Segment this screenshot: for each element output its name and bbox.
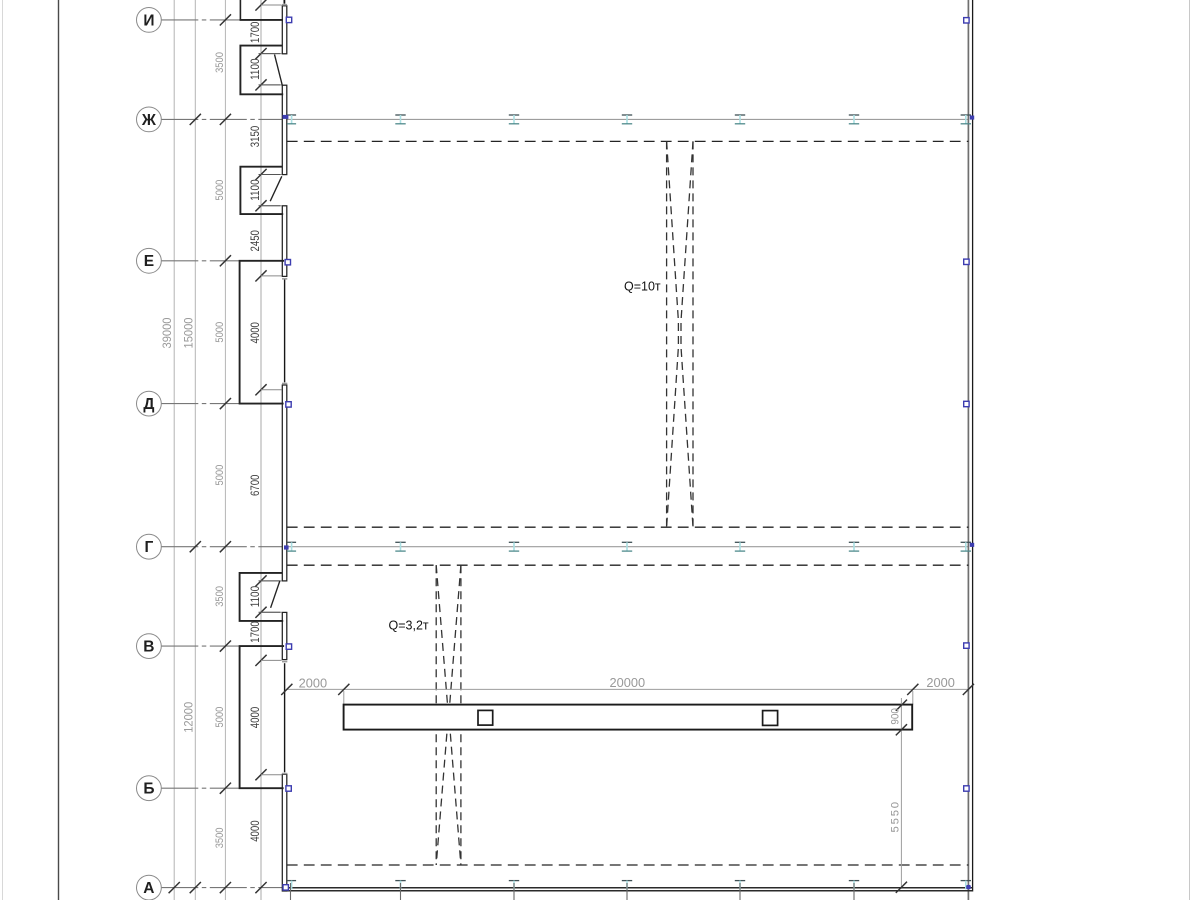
svg-text:5000: 5000	[214, 180, 226, 201]
svg-text:3500: 3500	[214, 52, 226, 73]
svg-text:1700: 1700	[248, 621, 262, 643]
svg-text:Q=10т: Q=10т	[624, 279, 661, 293]
svg-text:2450: 2450	[248, 230, 262, 252]
svg-text:4000: 4000	[248, 706, 262, 728]
svg-text:20000: 20000	[610, 675, 646, 690]
svg-text:5550: 5550	[890, 800, 902, 832]
svg-text:6700: 6700	[248, 474, 262, 496]
svg-text:Г: Г	[145, 539, 154, 556]
svg-text:1700: 1700	[248, 21, 262, 43]
svg-text:И: И	[143, 12, 154, 29]
svg-text:5000: 5000	[214, 322, 226, 343]
svg-text:12000: 12000	[182, 702, 196, 733]
svg-text:4000: 4000	[248, 820, 262, 842]
svg-text:1100: 1100	[248, 179, 262, 201]
svg-text:2000: 2000	[299, 675, 327, 690]
svg-text:2000: 2000	[926, 675, 954, 690]
svg-text:3500: 3500	[214, 828, 226, 849]
svg-text:Q=3,2т: Q=3,2т	[389, 619, 429, 633]
svg-text:900: 900	[890, 708, 902, 725]
svg-text:Ж: Ж	[141, 112, 157, 129]
svg-text:5000: 5000	[214, 465, 226, 486]
svg-text:3500: 3500	[214, 586, 226, 607]
svg-text:А: А	[143, 880, 154, 897]
svg-text:1100: 1100	[248, 58, 262, 80]
svg-text:39000: 39000	[160, 317, 174, 348]
svg-text:3150: 3150	[248, 125, 262, 147]
svg-text:Б: Б	[143, 781, 154, 798]
svg-text:4000: 4000	[248, 322, 262, 344]
svg-text:Д: Д	[143, 396, 154, 413]
svg-text:15000: 15000	[182, 317, 196, 348]
svg-text:1100: 1100	[248, 586, 262, 608]
svg-text:В: В	[143, 639, 154, 656]
svg-text:Е: Е	[144, 253, 154, 270]
svg-text:5000: 5000	[214, 707, 226, 728]
